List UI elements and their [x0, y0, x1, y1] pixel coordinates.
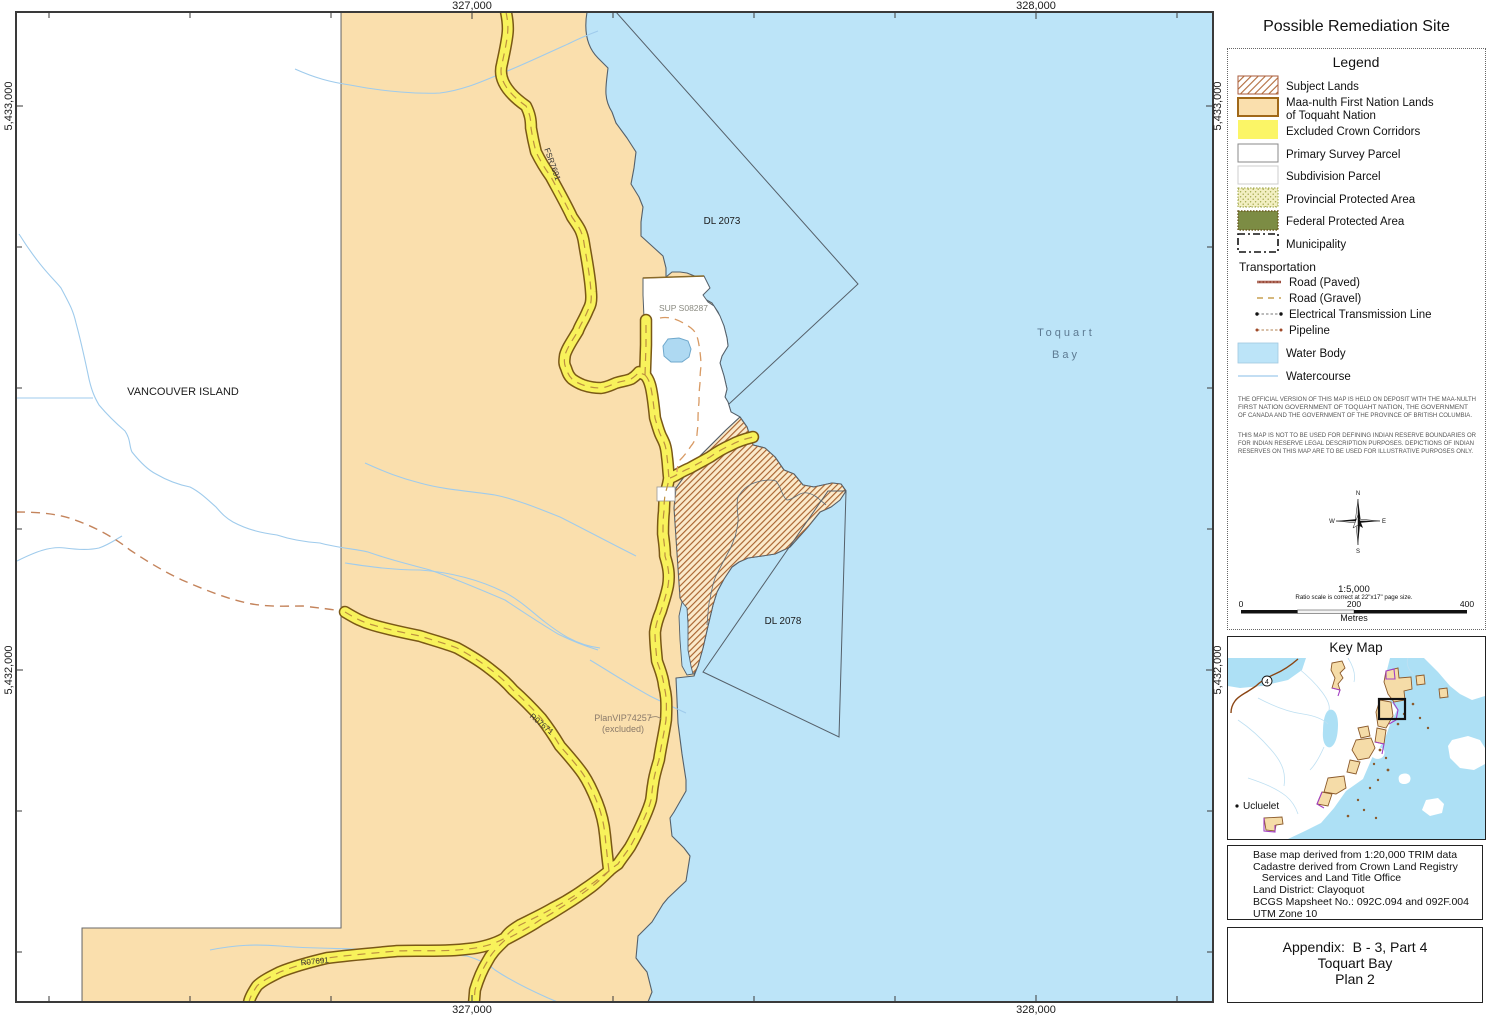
svg-text:THE OFFICIAL VERSION OF THIS M: THE OFFICIAL VERSION OF THIS MAP IS HELD… [1238, 396, 1476, 403]
svg-text:FOR INDIAN RESERVE LEGAL DESCR: FOR INDIAN RESERVE LEGAL DESCRIPTION PUR… [1238, 440, 1474, 447]
svg-text:Key Map: Key Map [1329, 640, 1382, 655]
svg-text:Watercourse: Watercourse [1286, 371, 1351, 383]
svg-text:Excluded Crown Corridors: Excluded Crown Corridors [1286, 126, 1420, 138]
svg-text:Road (Paved): Road (Paved) [1289, 277, 1360, 289]
svg-text:RESERVES ON THIS MAP ARE TO BE: RESERVES ON THIS MAP ARE TO BE USED FOR … [1238, 448, 1473, 455]
svg-text:327,000: 327,000 [452, 0, 492, 12]
svg-text:(excluded): (excluded) [602, 724, 644, 734]
svg-text:FIRST NATION GOVERNMENT OF: FIRST NATION GOVERNMENT OF TOQUAHT NATIO… [1238, 404, 1468, 411]
svg-text:VANCOUVER ISLAND: VANCOUVER ISLAND [127, 386, 239, 398]
svg-text:Subject Lands: Subject Lands [1286, 81, 1359, 93]
svg-text:4: 4 [1265, 679, 1269, 686]
svg-text:Water Body: Water Body [1286, 348, 1346, 360]
svg-text:Transportation: Transportation [1239, 260, 1316, 274]
svg-text:THIS MAP IS NOT TO BE USED FOR: THIS MAP IS NOT TO BE USED FOR DEFINING … [1238, 432, 1476, 439]
svg-text:Legend: Legend [1333, 54, 1380, 70]
svg-text:Provincial Protected Area: Provincial Protected Area [1286, 194, 1416, 206]
svg-text:DL 2073: DL 2073 [704, 216, 741, 227]
svg-text:Electrical Transmission Line: Electrical Transmission Line [1289, 309, 1432, 321]
svg-text:Metres: Metres [1340, 613, 1368, 623]
svg-text:200: 200 [1347, 599, 1361, 609]
svg-text:5,433,000: 5,433,000 [1212, 82, 1224, 131]
svg-text:SUP S08287: SUP S08287 [659, 303, 708, 313]
svg-text:Toquart: Toquart [1037, 327, 1095, 339]
svg-text:E: E [1382, 519, 1386, 525]
svg-text:328,000: 328,000 [1016, 1004, 1056, 1016]
svg-text:of Toquaht Nation: of Toquaht Nation [1286, 110, 1376, 122]
svg-text:Municipality: Municipality [1286, 239, 1346, 251]
svg-text:Federal Protected Area: Federal Protected Area [1286, 216, 1405, 228]
svg-text:5,433,000: 5,433,000 [3, 82, 15, 131]
svg-text:0: 0 [1239, 599, 1244, 609]
svg-text:Bay: Bay [1052, 349, 1080, 361]
svg-text:5,432,000: 5,432,000 [3, 646, 15, 695]
svg-text:S: S [1356, 549, 1360, 555]
svg-text:Subdivision Parcel: Subdivision Parcel [1286, 171, 1381, 183]
svg-text:Primary Survey Parcel: Primary Survey Parcel [1286, 149, 1400, 161]
svg-text:327,000: 327,000 [452, 1004, 492, 1016]
svg-text:PlanVIP74257: PlanVIP74257 [594, 713, 652, 723]
svg-text:Ucluelet: Ucluelet [1243, 801, 1279, 812]
svg-text:DL 2078: DL 2078 [765, 616, 802, 627]
svg-text:Road (Gravel): Road (Gravel) [1289, 293, 1361, 305]
svg-text:N: N [1356, 491, 1360, 497]
svg-text:5,432,000: 5,432,000 [1212, 646, 1224, 695]
svg-text:W: W [1329, 519, 1335, 525]
svg-text:400: 400 [1460, 599, 1474, 609]
svg-text:Maa-nulth First Nation Lands: Maa-nulth First Nation Lands [1286, 97, 1434, 109]
svg-text:328,000: 328,000 [1016, 0, 1056, 12]
svg-text:Pipeline: Pipeline [1289, 325, 1330, 337]
svg-text:OF CANADA AND THE GOVERNMENT O: OF CANADA AND THE GOVERNMENT OF THE PROV… [1238, 412, 1472, 419]
